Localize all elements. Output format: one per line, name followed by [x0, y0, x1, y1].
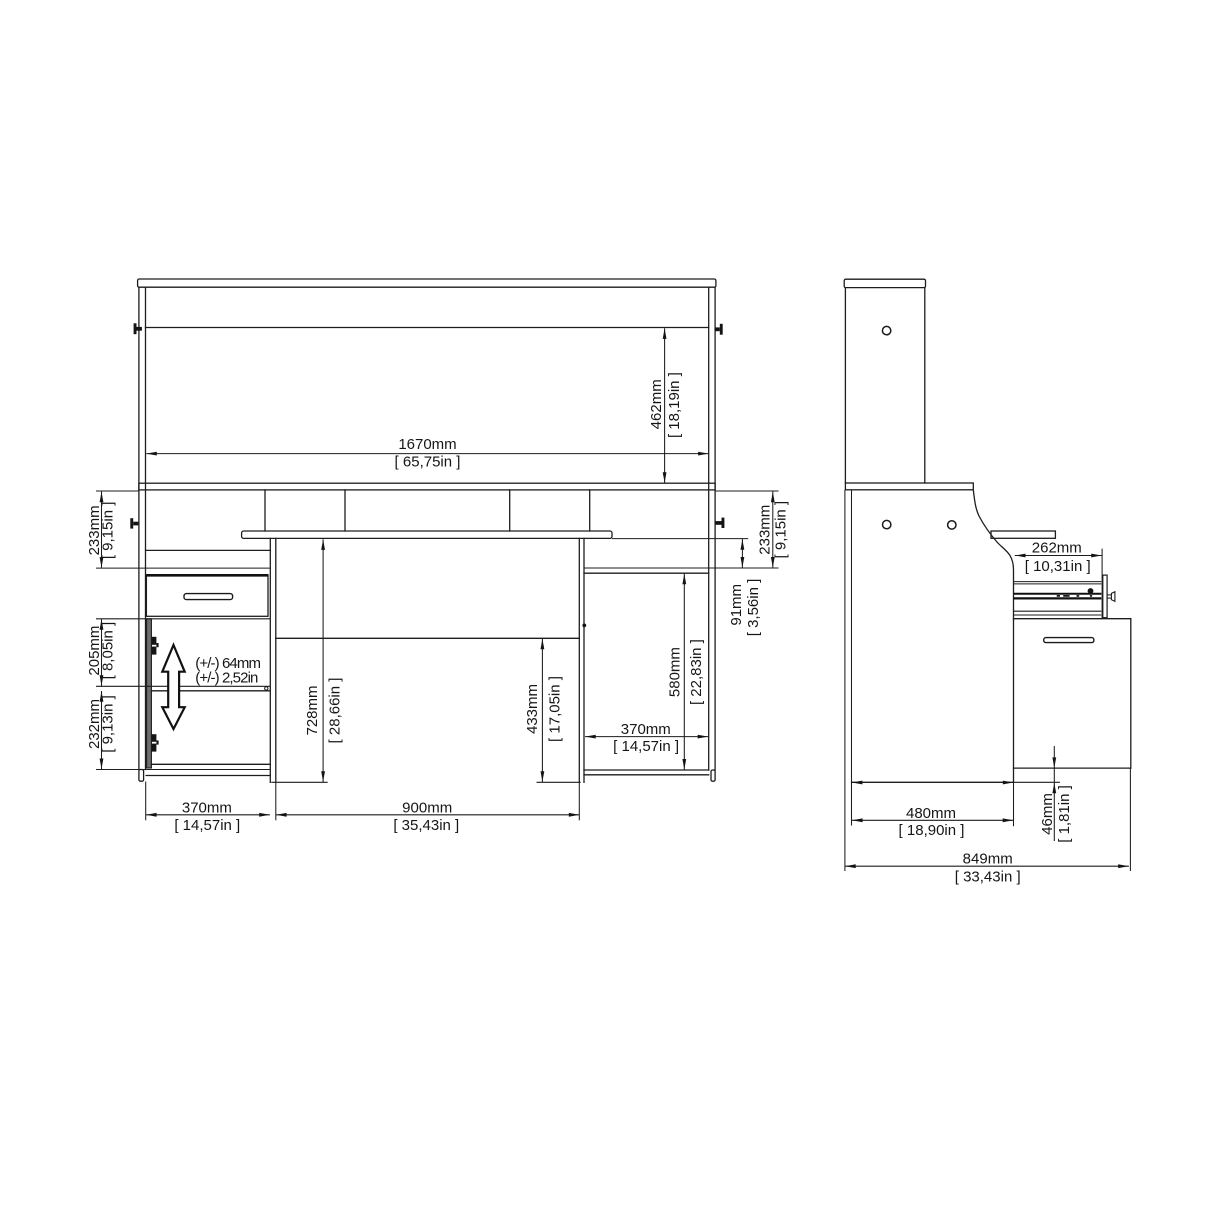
svg-text:91mm: 91mm [728, 584, 745, 626]
svg-text:370mm: 370mm [182, 799, 232, 816]
svg-text:[ 1,81in ]: [ 1,81in ] [1056, 785, 1073, 843]
svg-text:[ 9,15in ]: [ 9,15in ] [100, 502, 117, 560]
svg-text:433mm: 433mm [524, 684, 541, 734]
svg-text:[ 8,05in ]: [ 8,05in ] [100, 622, 117, 680]
svg-text:262mm: 262mm [1032, 540, 1082, 557]
svg-text:480mm: 480mm [906, 805, 956, 822]
svg-text:728mm: 728mm [304, 685, 321, 735]
svg-text:580mm: 580mm [667, 647, 684, 697]
svg-text:900mm: 900mm [402, 799, 452, 816]
svg-text:1670mm: 1670mm [398, 436, 456, 453]
svg-text:370mm: 370mm [621, 721, 671, 738]
svg-text:[ 3,56in ]: [ 3,56in ] [745, 579, 762, 637]
svg-text:[ 10,31in ]: [ 10,31in ] [1025, 558, 1091, 575]
svg-text:[ 65,75in ]: [ 65,75in ] [395, 454, 461, 471]
svg-text:46mm: 46mm [1039, 793, 1056, 835]
svg-text:[ 18,90in ]: [ 18,90in ] [899, 822, 965, 839]
svg-text:[ 14,57in ]: [ 14,57in ] [174, 817, 240, 834]
svg-text:[ 35,43in ]: [ 35,43in ] [393, 817, 459, 834]
svg-text:[ 33,43in ]: [ 33,43in ] [955, 868, 1021, 885]
svg-text:[ 17,05in ]: [ 17,05in ] [546, 676, 563, 742]
svg-text:[ 18,19in ]: [ 18,19in ] [666, 372, 683, 438]
svg-text:(+/-) 2,52in: (+/-) 2,52in [195, 670, 258, 687]
svg-text:[ 9,13in ]: [ 9,13in ] [100, 695, 117, 753]
svg-text:849mm: 849mm [963, 851, 1013, 868]
svg-text:233mm: 233mm [757, 505, 774, 555]
svg-text:[ 14,57in ]: [ 14,57in ] [613, 738, 679, 755]
svg-text:[ 9,15in ]: [ 9,15in ] [772, 501, 789, 559]
svg-text:[ 22,83in ]: [ 22,83in ] [688, 639, 705, 705]
svg-text:462mm: 462mm [648, 379, 665, 429]
svg-text:[ 28,66in ]: [ 28,66in ] [327, 678, 344, 744]
